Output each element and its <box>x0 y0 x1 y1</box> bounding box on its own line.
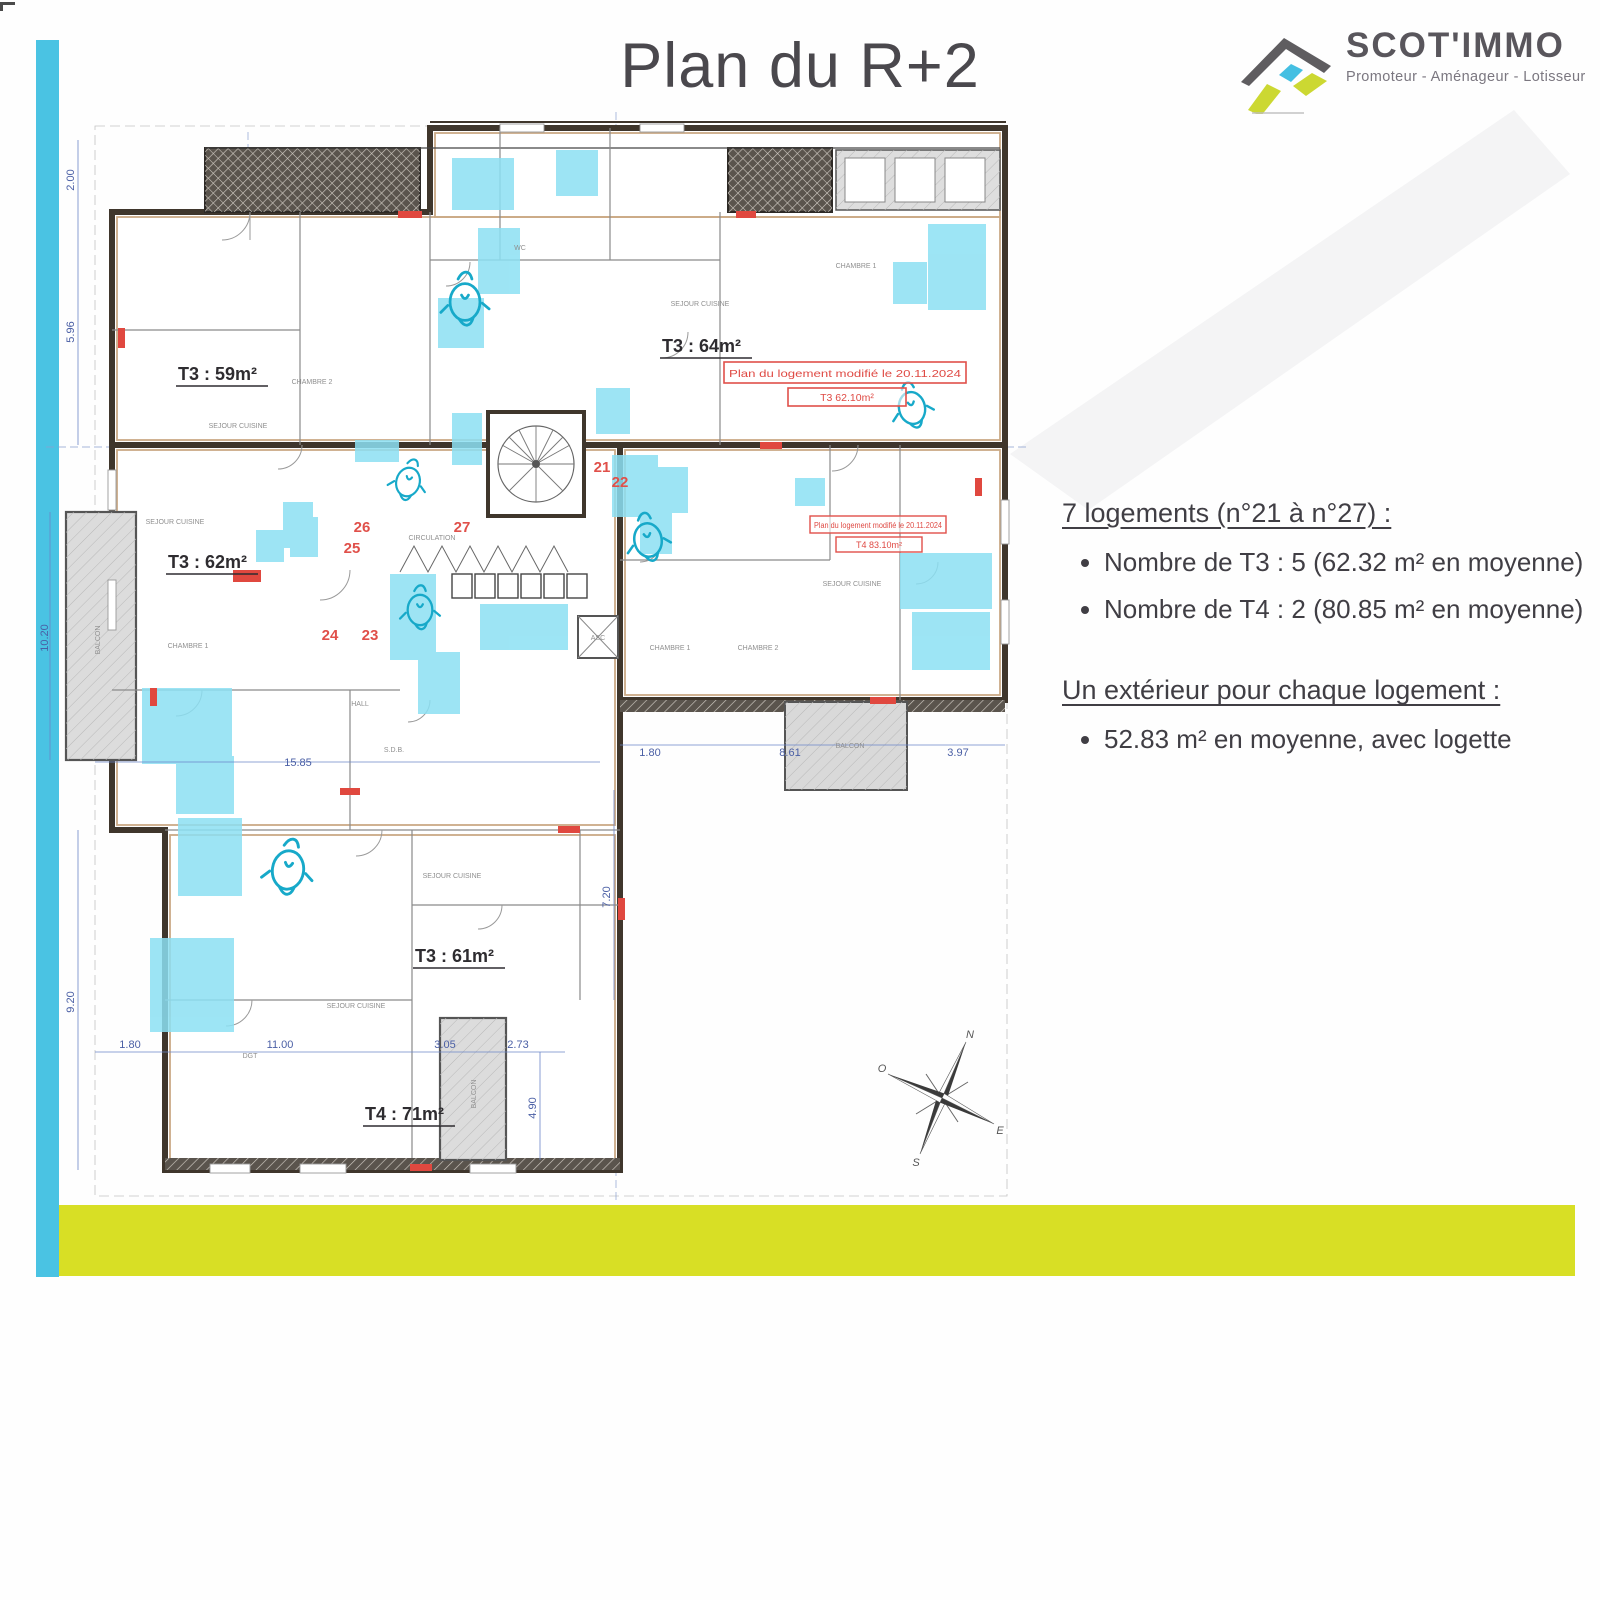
dim-label: 7.20 <box>601 886 613 907</box>
info-list-exterieur: 52.83 m² en moyenne, avec logette <box>1062 722 1600 757</box>
dim-label: 4.90 <box>527 1097 539 1118</box>
info-bullet-t3: Nombre de T3 : 5 (62.32 m² en moyenne) <box>1104 545 1600 580</box>
room-label: SEJOUR CUISINE <box>671 301 730 308</box>
compass-west-label: O <box>878 1063 887 1075</box>
floor-plan: 2.00 5.96 10.20 9.20 15.85 1.80 11.00 3.… <box>40 108 1040 1228</box>
dim-label: 15.85 <box>284 757 312 769</box>
dim-label: 3.97 <box>947 747 968 759</box>
dim-label: 11.00 <box>267 1039 294 1051</box>
room-label: CHAMBRE 1 <box>836 263 877 270</box>
room-label: BALCON <box>95 626 102 655</box>
dim-label: 9.20 <box>65 991 77 1012</box>
logo-blue-shape <box>1279 64 1303 82</box>
apartment-label: T3 : 59m² <box>178 364 257 384</box>
room-label: DGT <box>243 1053 259 1060</box>
room-label: HALL <box>351 701 369 708</box>
dim-label: 2.00 <box>65 169 77 190</box>
info-list-logements: Nombre de T3 : 5 (62.32 m² en moyenne) N… <box>1062 545 1600 627</box>
apartment-label: T4 : 71m² <box>365 1104 444 1124</box>
room-label: CIRCULATION <box>409 535 456 542</box>
annotation-text: T3 62.10m² <box>820 392 874 404</box>
info-heading-logements: 7 logements (n°21 à n°27) : <box>1062 498 1391 528</box>
logo-yellow-shape-left <box>1248 84 1281 114</box>
info-bullet-exterieur: 52.83 m² en moyenne, avec logette <box>1104 722 1600 757</box>
annotation-text: T4 83.10m² <box>856 540 902 550</box>
unit-number: 21 <box>594 459 611 476</box>
room-label: SEJOUR CUISINE <box>823 581 882 588</box>
logo-tagline: Promoteur - Aménageur - Lotisseur <box>1346 69 1586 85</box>
room-label: SEJOUR CUISINE <box>327 1003 386 1010</box>
scotimmo-logo: SCOT'IMMO Promoteur - Aménageur - Lotiss… <box>1236 28 1586 114</box>
unit-number: 24 <box>322 627 339 644</box>
dim-label: 1.80 <box>639 747 660 759</box>
annotation-text: Plan du logement modifié le 20.11.2024 <box>729 368 961 380</box>
unit-number: 22 <box>612 474 629 491</box>
room-label: S.D.B. <box>384 747 404 754</box>
scotimmo-logo-icon <box>1236 28 1336 114</box>
annotation-text: Plan du logement modifié le 20.11.2024 <box>814 521 942 530</box>
room-label: BALCON <box>471 1080 478 1109</box>
room-label: SEJOUR CUISINE <box>146 519 205 526</box>
dim-label: 10.20 <box>40 624 51 652</box>
logo-yellow-shape-right <box>1293 73 1327 96</box>
apartment-label: T3 : 62m² <box>168 552 247 572</box>
dim-label: 3.05 <box>434 1039 455 1051</box>
dim-label: 2.73 <box>507 1039 528 1051</box>
info-bullet-t4: Nombre de T4 : 2 (80.85 m² en moyenne) <box>1104 592 1600 627</box>
info-heading-exterieur: Un extérieur pour chaque logement : <box>1062 675 1500 705</box>
scan-shadow <box>1010 110 1570 510</box>
scan-artifact <box>0 2 3 11</box>
logo-text: SCOT'IMMO Promoteur - Aménageur - Lotiss… <box>1346 28 1586 85</box>
scanned-floorplan-page: { "page": { "title": "Plan du R+2" }, "l… <box>0 0 1600 1600</box>
compass-rose: N O E S <box>878 1029 1005 1169</box>
unit-number: 27 <box>454 519 471 536</box>
room-label: CHAMBRE 2 <box>738 645 779 652</box>
room-label: CHAMBRE 1 <box>650 645 691 652</box>
room-label: SEJOUR CUISINE <box>209 423 268 430</box>
dim-label: 1.80 <box>119 1039 140 1051</box>
unit-number: 26 <box>354 519 371 536</box>
room-label: WC <box>514 245 526 252</box>
dim-label: 5.96 <box>65 321 77 342</box>
compass-north-label: N <box>966 1029 974 1041</box>
logo-baseline <box>1252 112 1304 114</box>
apartment-label: T3 : 61m² <box>415 946 494 966</box>
room-label: ASC <box>591 635 605 642</box>
room-label: SEJOUR CUISINE <box>423 873 482 880</box>
apartment-label: T3 : 64m² <box>662 336 741 356</box>
compass-south-label: S <box>912 1157 920 1169</box>
info-panel: 7 logements (n°21 à n°27) : Nombre de T3… <box>1062 498 1600 769</box>
info-block-logements: 7 logements (n°21 à n°27) : Nombre de T3… <box>1062 498 1600 627</box>
unit-number: 23 <box>362 627 379 644</box>
stairwell <box>488 412 584 516</box>
compass-east-label: E <box>996 1125 1004 1137</box>
room-label: BALCON <box>836 743 865 750</box>
room-label: CHAMBRE 2 <box>292 379 333 386</box>
room-label: CHAMBRE 1 <box>168 643 209 650</box>
logo-name: SCOT'IMMO <box>1346 28 1586 63</box>
floor-plan-svg: 2.00 5.96 10.20 9.20 15.85 1.80 11.00 3.… <box>40 108 1040 1228</box>
unit-number: 25 <box>344 540 361 557</box>
info-block-exterieur: Un extérieur pour chaque logement : 52.8… <box>1062 675 1600 757</box>
dim-label: 8.61 <box>779 747 800 759</box>
